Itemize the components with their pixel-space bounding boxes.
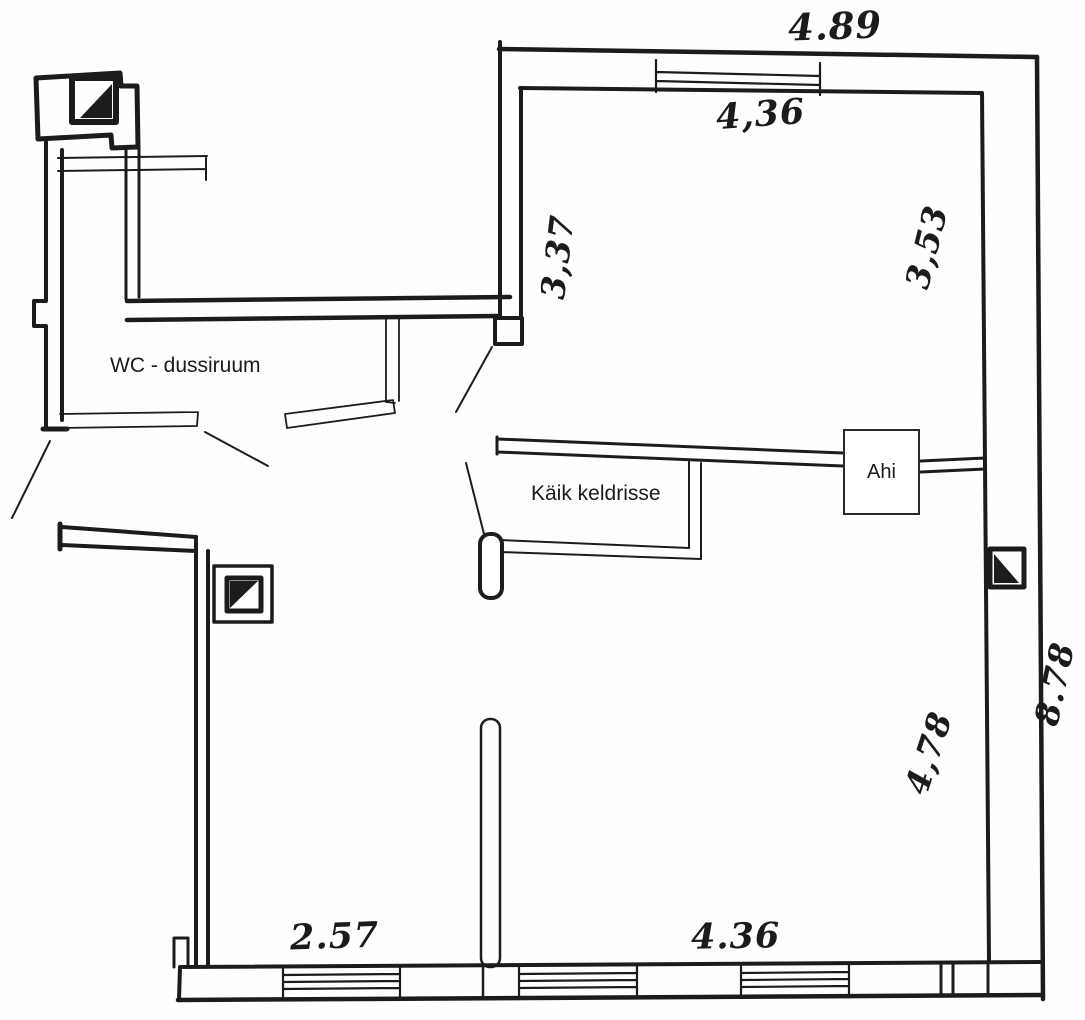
wc-bottom-wall [60, 412, 198, 428]
left-exterior-wall [34, 142, 67, 429]
top-exterior-wall [499, 49, 1037, 95]
floor-plan-drawing [0, 0, 1085, 1020]
dimension-bottom-left-room-width: 2.57 [289, 914, 380, 958]
stove-label: Ahi [867, 461, 896, 484]
dimension-top-exterior: 4.89 [787, 2, 883, 49]
right-exterior-wall [982, 57, 1043, 999]
floor-plan-page: WC - dussiruum Käik keldrisse Ahi 4.89 4… [0, 0, 1085, 1020]
bottom-center-partition [481, 719, 500, 967]
flue-block [214, 566, 272, 622]
hall-top-wall [127, 297, 510, 320]
wc-room-label: WC - dussiruum [110, 354, 261, 378]
window-symbol-bottom-mid [519, 965, 637, 997]
window-symbol-bottom-right [741, 964, 849, 996]
cellar-passage-label: Käik keldrisse [531, 482, 661, 506]
wall-end-post [480, 534, 502, 598]
flue-symbol-triangle [80, 84, 112, 118]
window-symbol-bottom-left [283, 966, 400, 998]
dimension-bottom-right-room-width: 4.36 [691, 915, 781, 958]
chimney-block [36, 73, 138, 148]
flue-symbol-triangle [230, 581, 258, 608]
dimension-top-room-width: 4,36 [715, 91, 807, 138]
stove-box: Ahi [843, 429, 920, 515]
flue-symbol-triangle [994, 554, 1019, 583]
left-room-wall [60, 524, 208, 966]
door-leaf [285, 317, 399, 428]
wc-top-partition [58, 156, 207, 180]
